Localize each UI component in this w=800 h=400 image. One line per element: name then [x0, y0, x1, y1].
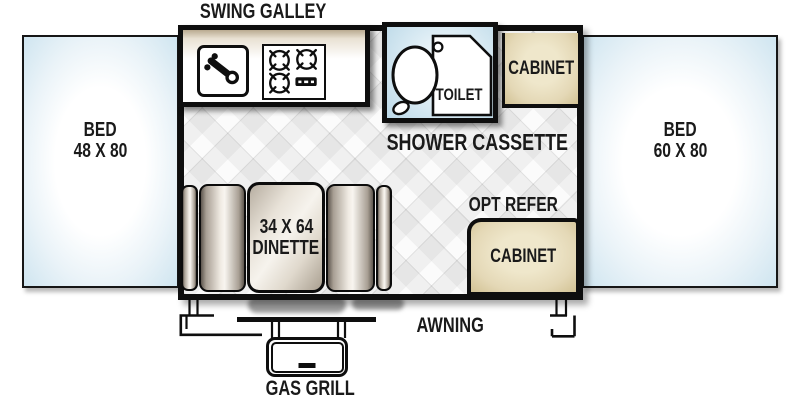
- cabinet-bottom: CABINET: [467, 218, 580, 296]
- cabinet-top-label: CABINET: [509, 58, 575, 80]
- dinette-table: 34 X 64 DINETTE: [247, 182, 325, 293]
- shower-cassette: TOILET: [382, 22, 498, 123]
- dinette-size: 34 X 64: [259, 217, 313, 238]
- gas-grill: [266, 337, 348, 377]
- gas-grill-label: GAS GRILL: [250, 377, 370, 400]
- bed-right: BED 60 X 80: [582, 35, 778, 288]
- shower-cassette-label: SHOWER CASSETTE: [361, 129, 521, 156]
- dinette-cushion: [326, 184, 375, 292]
- swing-galley-label: SWING GALLEY: [182, 0, 332, 24]
- awning-label: AWNING: [400, 314, 500, 338]
- cabinet-top: CABINET: [502, 33, 578, 108]
- swing-galley: [178, 25, 370, 107]
- dinette-name: DINETTE: [253, 238, 320, 259]
- cabinet-bottom-label: CABINET: [491, 246, 557, 268]
- bed-left: BED 48 X 80: [22, 35, 179, 288]
- bed-right-size: 60 X 80: [653, 141, 707, 162]
- bed-right-name: BED: [664, 120, 697, 141]
- camper-floorplan: SWING GALLEY BED 48 X 80 BED 60 X 80: [0, 0, 800, 400]
- sink: [197, 45, 249, 97]
- awning-arm-right-icon: [550, 300, 575, 336]
- dinette-cushion: [181, 185, 198, 291]
- dinette-cushion: [376, 185, 392, 291]
- opt-refer-label: OPT REFER: [455, 194, 571, 217]
- sink-faucet-icon: [200, 48, 246, 94]
- gas-grill-lid: [271, 342, 344, 373]
- gas-grill-handle: [299, 363, 316, 368]
- dinette-cushion: [199, 184, 246, 292]
- bed-left-name: BED: [84, 120, 117, 141]
- stove: [262, 44, 326, 100]
- bed-left-size: 48 X 80: [74, 141, 128, 162]
- grill-rail-icon: [237, 320, 376, 339]
- stove-burners-icon: [264, 46, 323, 97]
- toilet-label: TOILET: [427, 85, 491, 105]
